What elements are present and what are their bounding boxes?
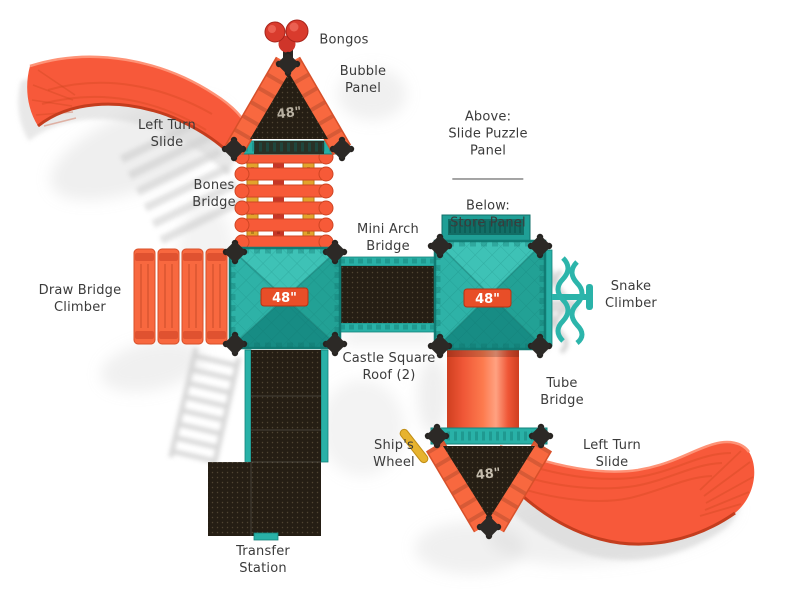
label-ships-wheel: Ship's Wheel [373, 438, 415, 472]
label-snake-climber: Snake Climber [605, 279, 657, 313]
height-badge-right-roof: 48" [464, 289, 511, 307]
label-divider [452, 179, 523, 180]
deck-height-top-triangle: 48" [276, 105, 303, 123]
deck-height-bottom-triangle: 48" [475, 466, 501, 484]
label-panel-stack: Above: Slide Puzzle Panel Below: Store P… [448, 92, 527, 249]
label-panel-above: Above: Slide Puzzle Panel [448, 109, 527, 160]
playground-diagram: 48" 48" [0, 0, 800, 600]
label-draw-bridge-climber: Draw Bridge Climber [39, 283, 122, 317]
label-bones-bridge: Bones Bridge [192, 178, 236, 212]
label-mini-arch-bridge: Mini Arch Bridge [357, 222, 419, 256]
castle-square-roof-left: 48" [223, 240, 347, 356]
height-badge-left-roof: 48" [261, 288, 308, 306]
label-bongos: Bongos [319, 33, 368, 50]
deck-height-right-square: 48" [475, 292, 500, 307]
tube-bridge-part [447, 350, 519, 432]
label-left-turn-slide-top: Left Turn Slide [138, 118, 196, 152]
label-transfer-station: Transfer Station [236, 544, 290, 578]
castle-square-roof-right: 48" [428, 234, 552, 358]
label-castle-square-roof: Castle Square Roof (2) [342, 351, 435, 385]
deck-height-left-square: 48" [272, 291, 297, 306]
label-panel-below: Below: Store Panel [448, 199, 527, 233]
label-bubble-panel: Bubble Panel [340, 64, 386, 98]
label-tube-bridge: Tube Bridge [540, 376, 584, 410]
label-left-turn-slide-bottom: Left Turn Slide [583, 438, 641, 472]
bones-bridge-part [235, 148, 333, 252]
mini-arch-bridge-part [338, 257, 438, 332]
